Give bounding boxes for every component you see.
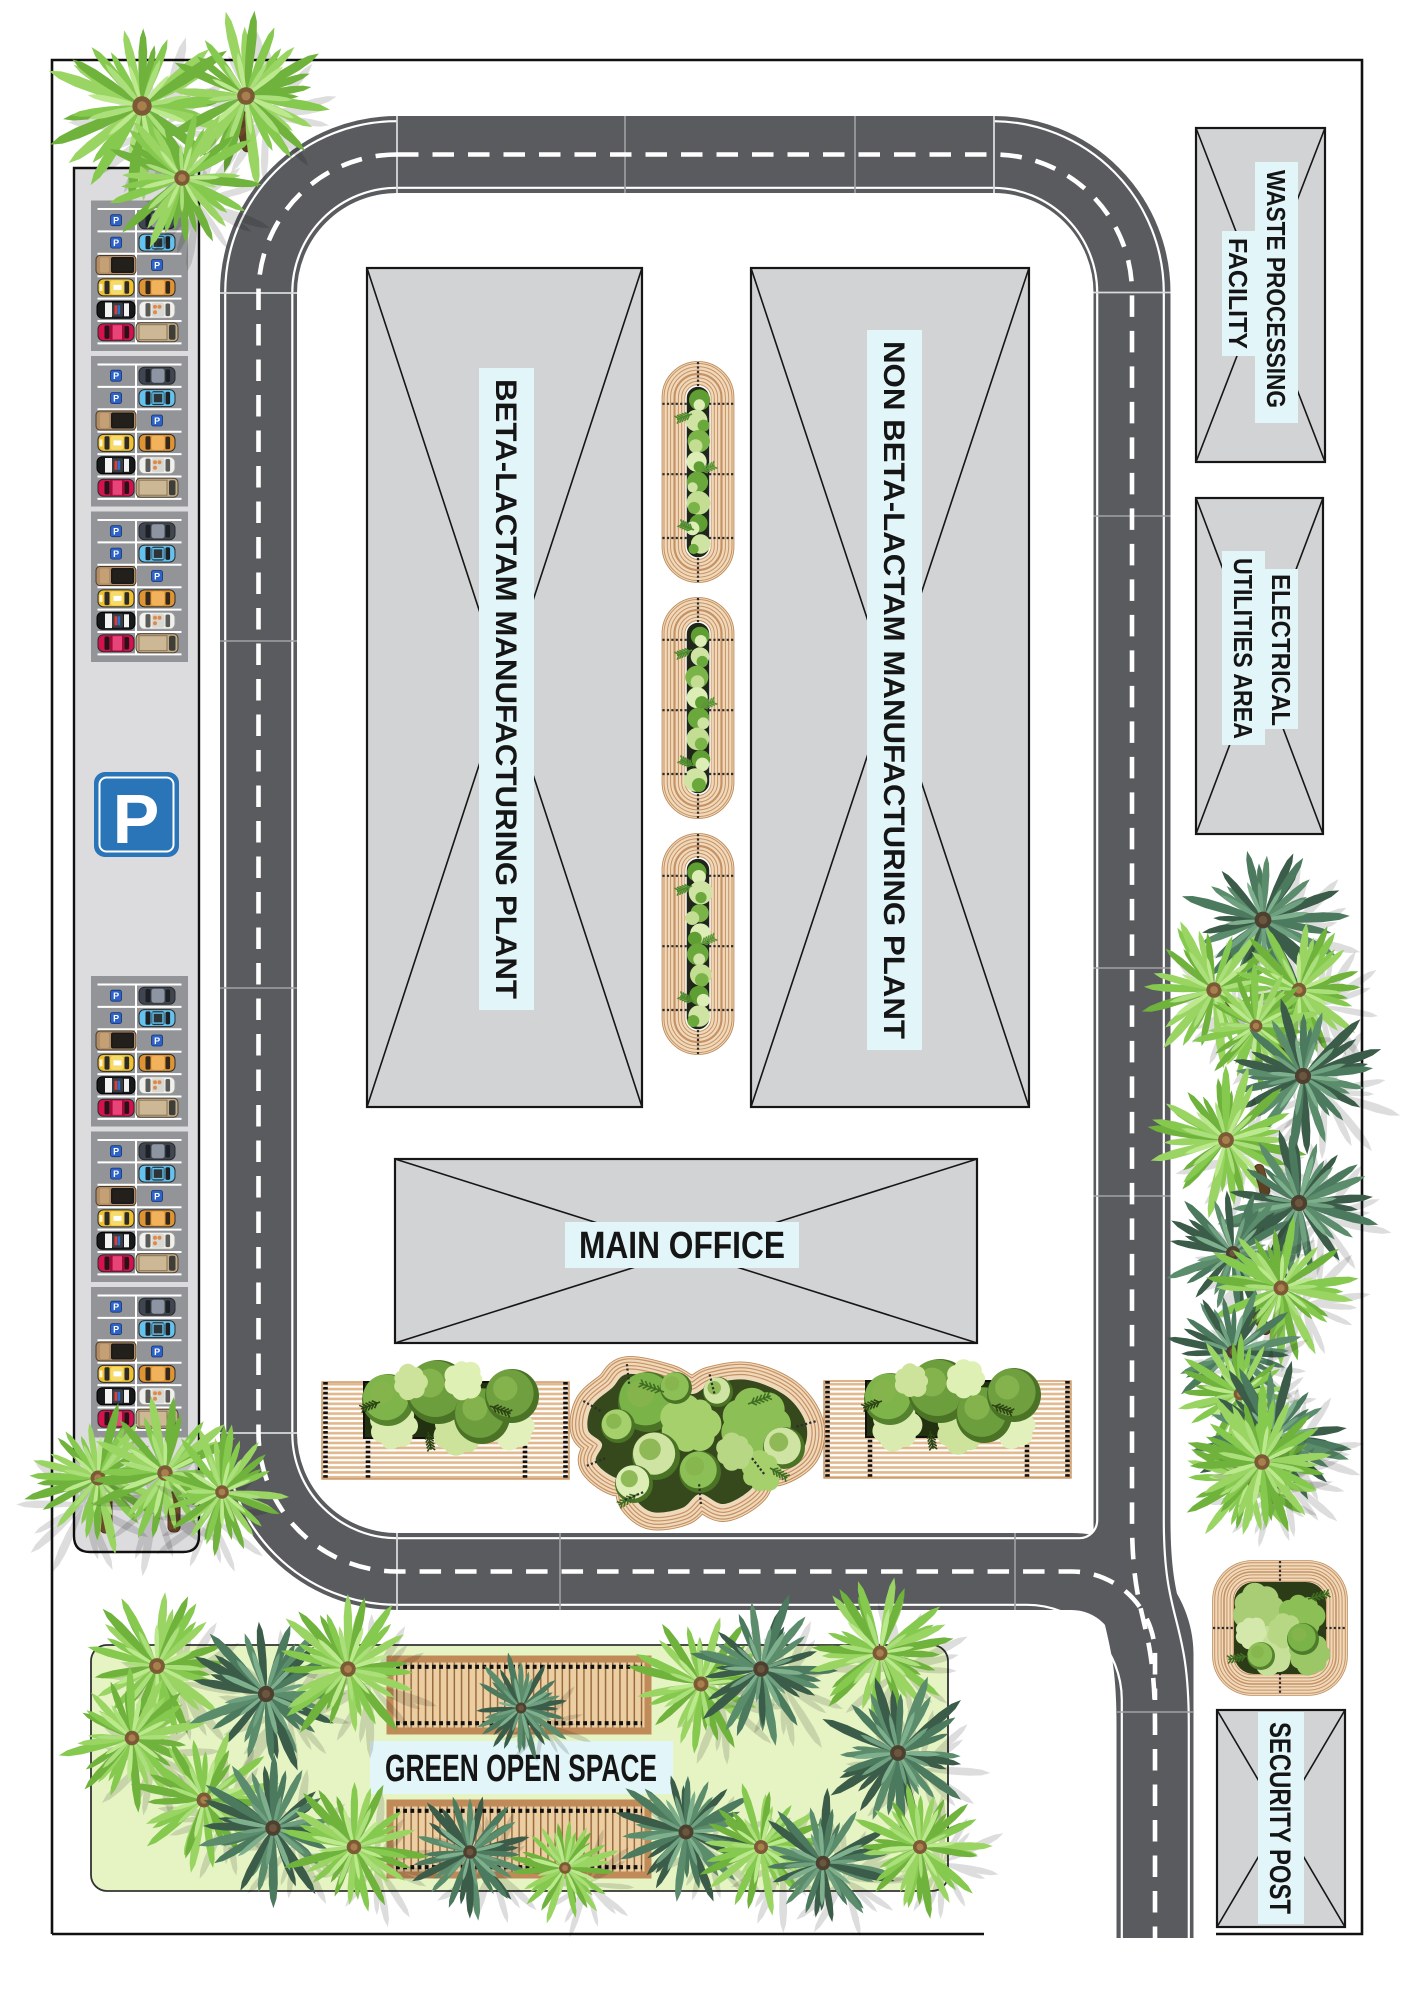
svg-text:GREEN OPEN SPACE: GREEN OPEN SPACE: [385, 1748, 657, 1790]
svg-text:UTILITIES AREA: UTILITIES AREA: [1228, 558, 1258, 739]
svg-text:NON BETA-LACTAM MANUFACTURING: NON BETA-LACTAM MANUFACTURING PLANT: [877, 341, 910, 1039]
svg-text:MAIN OFFICE: MAIN OFFICE: [579, 1225, 785, 1267]
svg-text:ELECTRICAL: ELECTRICAL: [1266, 574, 1296, 726]
svg-text:SECURITY POST: SECURITY POST: [1263, 1722, 1296, 1914]
svg-text:FACILITY: FACILITY: [1223, 238, 1253, 349]
svg-text:BETA-LACTAM MANUFACTURING PLAN: BETA-LACTAM MANUFACTURING PLANT: [489, 379, 522, 999]
svg-text:P: P: [113, 780, 160, 858]
svg-text:WASTE PROCESSING: WASTE PROCESSING: [1261, 170, 1291, 408]
